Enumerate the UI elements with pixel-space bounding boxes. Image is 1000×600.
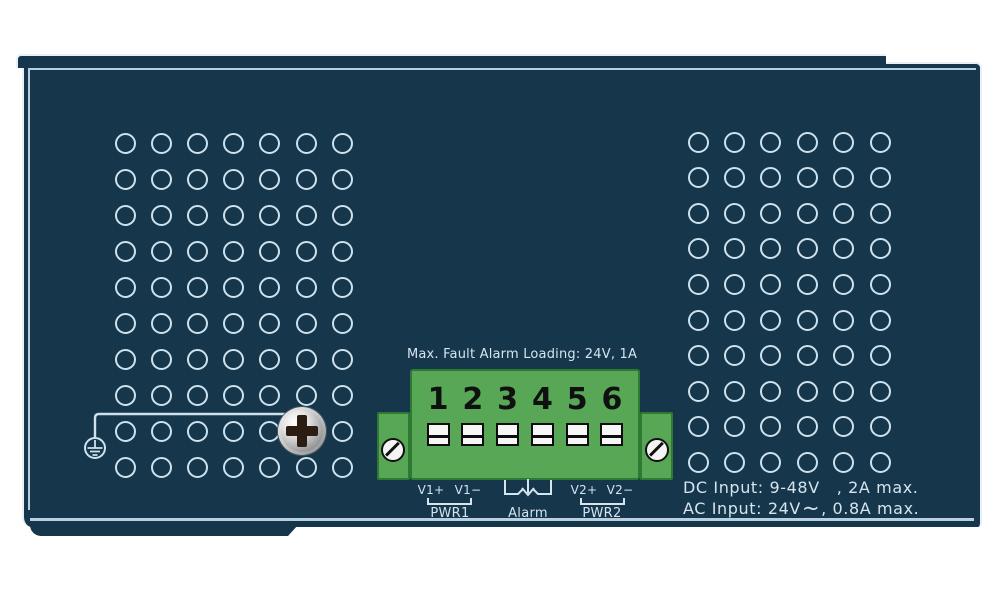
vent-hole <box>724 203 745 224</box>
slotted-screw-icon <box>645 438 669 462</box>
vent-hole <box>259 205 280 226</box>
vent-hole <box>870 274 891 295</box>
vent-hole <box>259 133 280 154</box>
vent-hole <box>223 205 244 226</box>
vent-hole <box>760 310 781 331</box>
pin-label-v2-plus: V2+ <box>564 483 604 497</box>
pin-label-v2-minus: V2− <box>600 483 640 497</box>
panel-inner-line-top <box>30 68 976 70</box>
pwr2-bracket <box>580 498 625 505</box>
vent-hole <box>688 274 709 295</box>
vent-hole <box>870 203 891 224</box>
vent-hole <box>187 169 208 190</box>
vent-hole <box>187 277 208 298</box>
vent-hole <box>833 132 854 153</box>
pin-label-v1-plus: V1+ <box>411 483 451 497</box>
vent-hole <box>797 274 818 295</box>
vent-hole <box>332 241 353 262</box>
slotted-screw-icon <box>381 438 405 462</box>
vent-hole <box>115 133 136 154</box>
terminal-block: 1 2 3 4 5 6 <box>410 369 640 480</box>
switch-top-view: Max. Fault Alarm Loading: 24V, 1A 1 2 3 … <box>0 0 1000 600</box>
vent-hole <box>151 457 172 478</box>
vent-hole <box>332 349 353 370</box>
pwr1-bracket <box>427 498 472 505</box>
vent-hole <box>688 238 709 259</box>
vent-hole <box>115 241 136 262</box>
terminal-contact-icon <box>461 423 484 446</box>
vent-hole <box>259 241 280 262</box>
vent-hole <box>797 310 818 331</box>
ground-wire <box>84 402 310 444</box>
vent-hole <box>115 349 136 370</box>
vent-hole <box>870 452 891 473</box>
vent-hole <box>688 452 709 473</box>
vent-hole <box>187 205 208 226</box>
vent-hole <box>187 133 208 154</box>
vent-hole <box>151 313 172 334</box>
terminal-number: 4 <box>532 386 553 414</box>
vent-hole <box>332 169 353 190</box>
vent-hole <box>760 132 781 153</box>
vent-hole <box>760 381 781 402</box>
vent-hole <box>870 345 891 366</box>
vent-hole <box>797 452 818 473</box>
group-label-pwr1: PWR1 <box>421 506 479 521</box>
vent-hole <box>797 381 818 402</box>
terminal-position-3: 3 <box>492 386 524 478</box>
vent-hole <box>688 310 709 331</box>
vent-hole <box>296 313 317 334</box>
terminal-number: 6 <box>602 386 623 414</box>
terminal-number: 2 <box>462 386 483 414</box>
vent-hole <box>797 132 818 153</box>
vent-hole <box>724 167 745 188</box>
vent-hole <box>296 349 317 370</box>
vent-hole <box>115 313 136 334</box>
pin-label-v1-minus: V1− <box>448 483 488 497</box>
vent-hole <box>259 169 280 190</box>
vent-hole <box>797 238 818 259</box>
vent-hole <box>223 241 244 262</box>
terminal-contact-icon <box>427 423 450 446</box>
vent-hole <box>870 167 891 188</box>
terminal-position-2: 2 <box>457 386 489 478</box>
vent-hole <box>223 277 244 298</box>
ac-input-rating: AC Input: 24V~, 0.8A max. <box>683 498 919 519</box>
power-ratings: DC Input: 9-48V, 2A max. AC Input: 24V~,… <box>683 477 919 519</box>
vent-hole <box>724 381 745 402</box>
vent-hole <box>870 238 891 259</box>
alarm-loading-caption: Max. Fault Alarm Loading: 24V, 1A <box>377 347 667 363</box>
vent-hole <box>724 310 745 331</box>
terminal-contact-icon <box>496 423 519 446</box>
earth-ground-icon <box>83 436 107 460</box>
vent-hole <box>332 277 353 298</box>
vent-hole <box>296 241 317 262</box>
terminal-position-6: 6 <box>596 386 628 478</box>
terminal-number: 1 <box>428 386 449 414</box>
vent-hole <box>187 241 208 262</box>
vent-hole <box>115 457 136 478</box>
vent-hole <box>724 452 745 473</box>
group-label-pwr2: PWR2 <box>573 506 631 521</box>
vent-hole <box>151 169 172 190</box>
group-label-alarm: Alarm <box>499 506 557 521</box>
vent-hole <box>332 205 353 226</box>
vent-hole <box>296 205 317 226</box>
vent-hole <box>760 203 781 224</box>
vent-hole <box>724 345 745 366</box>
vent-hole <box>332 133 353 154</box>
vent-hole <box>833 381 854 402</box>
vent-hole <box>688 167 709 188</box>
dc-current-icon <box>821 483 836 492</box>
vent-hole <box>870 416 891 437</box>
vent-hole <box>833 310 854 331</box>
chassis-back-edge <box>16 54 886 68</box>
vent-hole <box>870 381 891 402</box>
vent-hole <box>296 169 317 190</box>
vent-hole <box>296 457 317 478</box>
vent-hole <box>724 274 745 295</box>
vent-hole <box>187 313 208 334</box>
vent-hole <box>223 133 244 154</box>
terminal-number: 3 <box>497 386 518 414</box>
vent-hole <box>797 203 818 224</box>
vent-hole <box>688 345 709 366</box>
terminal-contact-icon <box>531 423 554 446</box>
terminal-contact-icon <box>566 423 589 446</box>
vent-hole <box>797 416 818 437</box>
vent-hole <box>332 313 353 334</box>
vent-hole <box>115 205 136 226</box>
vent-hole <box>688 381 709 402</box>
terminal-number: 5 <box>567 386 588 414</box>
vent-hole <box>870 132 891 153</box>
vent-hole <box>296 133 317 154</box>
vent-hole <box>151 241 172 262</box>
terminal-position-5: 5 <box>561 386 593 478</box>
vent-hole <box>797 345 818 366</box>
vent-hole <box>223 313 244 334</box>
vent-hole <box>688 416 709 437</box>
vent-hole <box>688 132 709 153</box>
vent-hole <box>115 277 136 298</box>
vent-hole <box>296 277 317 298</box>
vent-hole <box>187 349 208 370</box>
phillips-screw-icon <box>278 407 326 455</box>
vent-hole <box>332 457 353 478</box>
vent-hole <box>151 349 172 370</box>
chassis-front-edge <box>30 525 298 536</box>
vent-hole <box>223 169 244 190</box>
vent-hole <box>332 421 353 442</box>
vent-hole <box>870 310 891 331</box>
vent-hole <box>797 167 818 188</box>
vent-hole <box>151 205 172 226</box>
vent-hole <box>833 274 854 295</box>
vent-hole <box>332 385 353 406</box>
vent-hole <box>115 169 136 190</box>
terminal-contact-icon <box>600 423 623 446</box>
vent-hole <box>688 203 709 224</box>
vent-hole <box>833 452 854 473</box>
panel-inner-line-left <box>28 68 30 510</box>
terminal-position-4: 4 <box>526 386 558 478</box>
dc-input-rating: DC Input: 9-48V, 2A max. <box>683 477 919 498</box>
vent-hole <box>151 277 172 298</box>
terminal-position-1: 1 <box>422 386 454 478</box>
vent-hole <box>151 133 172 154</box>
alarm-relay-contact-icon <box>502 478 554 503</box>
vent-hole <box>833 203 854 224</box>
vent-hole <box>724 132 745 153</box>
